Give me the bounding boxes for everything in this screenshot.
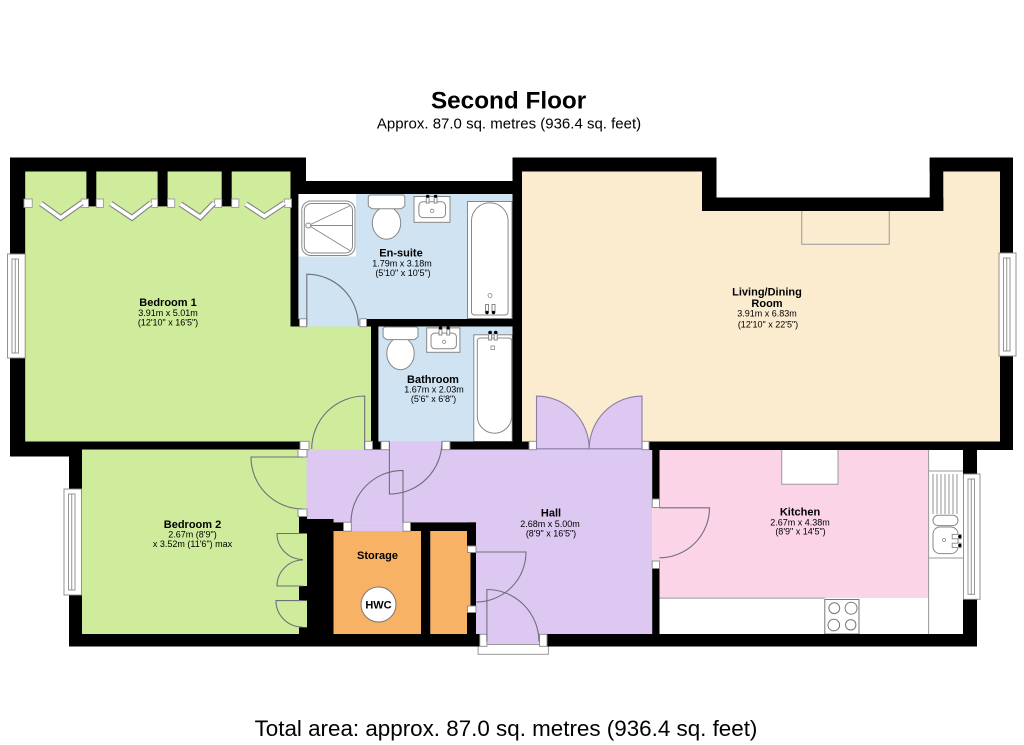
svg-text:Total area: approx. 87.0 sq. m: Total area: approx. 87.0 sq. metres (936… — [255, 716, 758, 741]
svg-text:2.67m (8'9"): 2.67m (8'9") — [168, 530, 216, 540]
svg-text:(8'9" x 16'5"): (8'9" x 16'5") — [526, 529, 576, 539]
svg-text:3.91m x 5.01m: 3.91m x 5.01m — [138, 308, 198, 318]
svg-text:(8'9" x 14'5"): (8'9" x 14'5") — [775, 527, 825, 537]
svg-text:1.79m x 3.18m: 1.79m x 3.18m — [372, 259, 432, 269]
svg-text:2.68m x 5.00m: 2.68m x 5.00m — [520, 519, 580, 529]
svg-text:HWC: HWC — [365, 600, 391, 612]
svg-text:Hall: Hall — [541, 508, 561, 520]
svg-text:(12'10" x 22'5"): (12'10" x 22'5") — [738, 320, 798, 330]
svg-text:Second Floor: Second Floor — [431, 88, 587, 115]
svg-text:(5'6" x 6'8"): (5'6" x 6'8") — [411, 394, 456, 404]
svg-text:(12'10" x 16'5"): (12'10" x 16'5") — [138, 318, 198, 328]
svg-text:3.91m x 6.83m: 3.91m x 6.83m — [737, 309, 797, 319]
svg-text:Living/Dining: Living/Dining — [732, 287, 802, 299]
svg-text:1.67m x 2.03m: 1.67m x 2.03m — [404, 385, 464, 395]
svg-text:(5'10" x 10'5"): (5'10" x 10'5") — [375, 268, 430, 278]
svg-text:Storage: Storage — [357, 550, 398, 562]
svg-text:Approx. 87.0 sq. metres (936.4: Approx. 87.0 sq. metres (936.4 sq. feet) — [377, 115, 641, 132]
svg-text:x 3.52m (11'6") max: x 3.52m (11'6") max — [153, 539, 233, 549]
